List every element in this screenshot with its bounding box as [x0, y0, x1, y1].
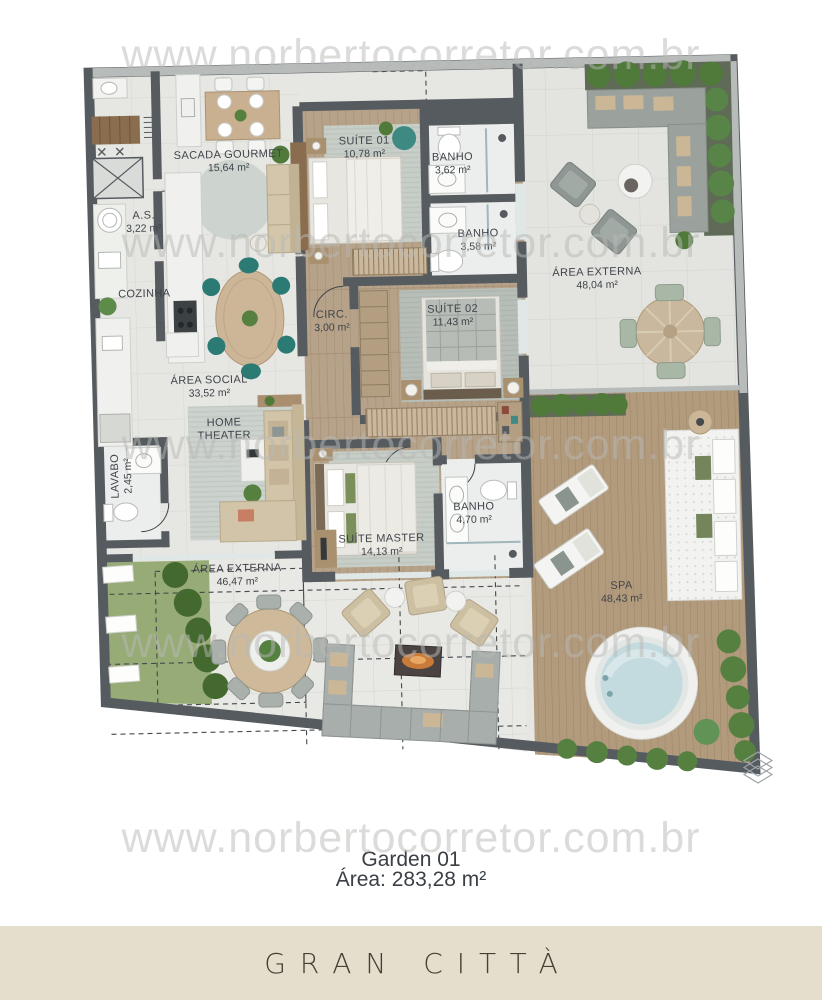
room-label-lavabo: LAVABO 2,45 m²	[109, 453, 136, 498]
floor-plan-drawing	[0, 0, 822, 839]
side-table	[446, 591, 466, 611]
shower-glass	[486, 128, 487, 192]
fire-pit	[394, 645, 441, 677]
brand-title: GRAN CITTÀ	[250, 947, 572, 980]
room-label-suite-01: SUÍTE 01 10,78 m²	[339, 134, 390, 161]
unit-total-area: Área: 283,28 m²	[0, 868, 822, 892]
floor-plan: SACADA GOURMET 15,64 m² A.S. 3,22 m² COZ…	[0, 0, 822, 839]
room-label-spa: SPA 48,43 m²	[601, 579, 643, 606]
room-label-as: A.S. 3,22 m²	[126, 209, 162, 236]
page: SACADA GOURMET 15,64 m² A.S. 3,22 m² COZ…	[0, 0, 822, 1000]
shelving-unit	[498, 402, 523, 442]
sofa-chaise	[220, 500, 297, 542]
toilet	[480, 480, 506, 501]
side-table	[385, 587, 405, 607]
brand-logo-icon	[742, 750, 774, 793]
room-label-cozinha: COZINHA	[118, 287, 171, 301]
room-label-area-externa-direita: ÁREA EXTERNA 48,04 m²	[552, 265, 642, 293]
room-label-area-social: ÁREA SOCIAL 33,52 m²	[170, 374, 248, 401]
tv	[247, 449, 259, 457]
pillow	[272, 427, 284, 437]
tv	[320, 538, 326, 560]
sideboard	[166, 332, 198, 357]
room-label-suite-master: SUÍTE MASTER 14,13 m²	[338, 532, 425, 560]
room-label-banho-2: BANHO 3,58 m²	[457, 227, 499, 254]
washer-icon	[98, 208, 122, 232]
green-cushion	[695, 456, 711, 480]
toilet	[114, 503, 138, 521]
side-table	[580, 204, 600, 224]
room-label-banho-1: BANHO 3,62 m²	[432, 151, 474, 178]
circ-bookshelf	[359, 290, 389, 397]
room-label-sacada-gourmet: SACADA GOURMET 15,64 m²	[174, 148, 284, 176]
room-label-circ: CIRC. 3,00 m²	[314, 308, 350, 335]
room-label-banho-master: BANHO 4,70 m²	[453, 500, 495, 527]
room-label-home-theater: HOME THEATER	[191, 416, 258, 444]
green-cushion	[696, 514, 712, 538]
gourmet-counter	[176, 74, 202, 146]
brand-banner: GRAN CITTÀ	[0, 926, 822, 1000]
tv-console	[240, 439, 265, 481]
storage-closet	[92, 116, 141, 145]
room-label-area-externa-esquerda: ÁREA EXTERNA 46,47 m²	[192, 562, 282, 590]
pillow	[238, 509, 254, 521]
side-table	[250, 235, 266, 251]
fridge	[100, 414, 131, 443]
headboard	[423, 388, 501, 400]
room-label-suite-02: SUÍTE 02 11,43 m²	[427, 303, 478, 330]
